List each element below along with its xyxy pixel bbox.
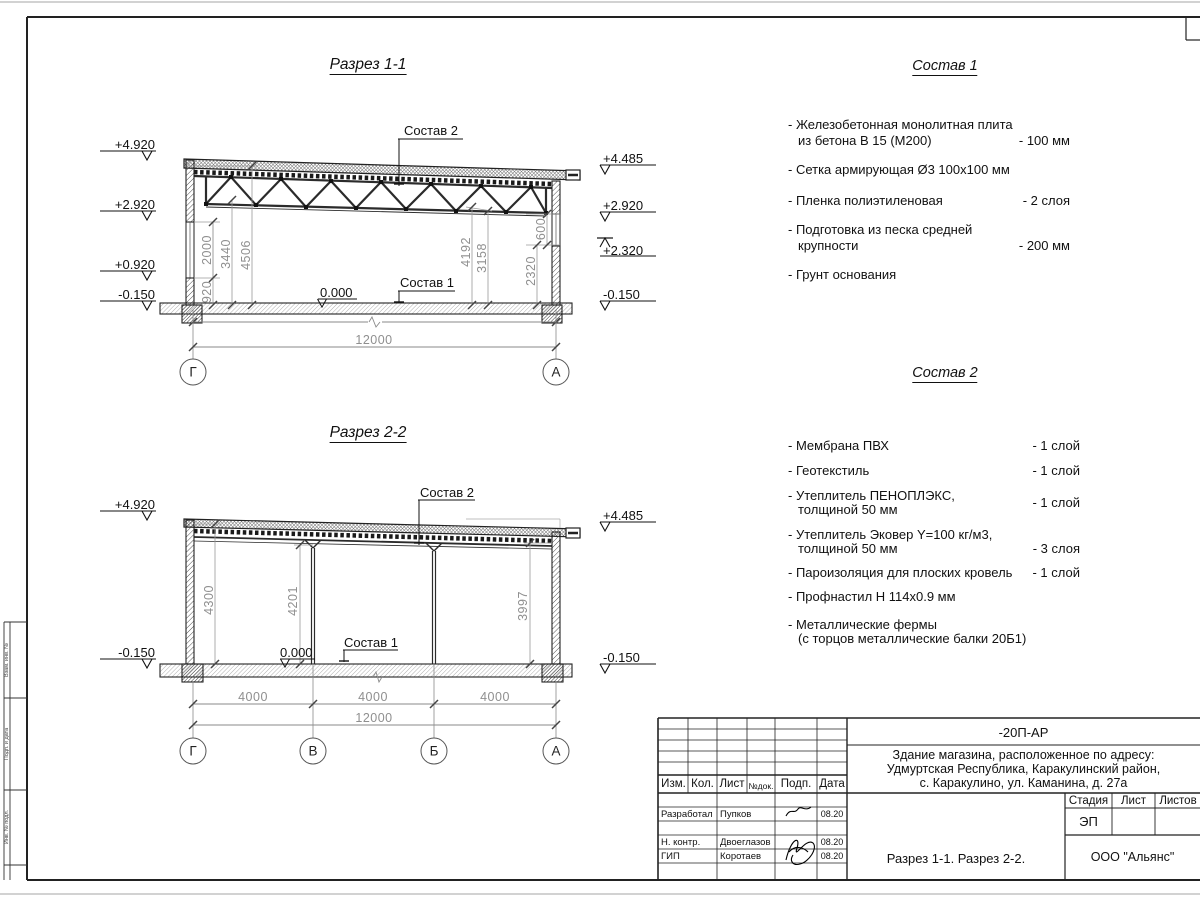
- stamp-vzam-inv: Взам. инв. №: [4, 643, 10, 677]
- tb-row2-role: Н. контр.: [661, 837, 700, 848]
- tb-row2-name: Двоеглазов: [720, 837, 771, 848]
- list1-item-5: - Грунт основания: [788, 267, 896, 282]
- section2-dim-span-1: 4000: [238, 690, 268, 704]
- section2-axis-g: Г: [189, 744, 196, 759]
- list2-value-2: - 1 слой: [1008, 463, 1080, 478]
- section1-elev-right-2: +2.920: [603, 198, 660, 213]
- list2-value-3: - 1 слой: [1008, 495, 1080, 510]
- section1-elev-right-3: +2.320: [603, 243, 660, 258]
- section2-axis-v: В: [308, 744, 317, 759]
- section1-axis-g: Г: [189, 365, 196, 380]
- tb-row2-date: 08.20: [817, 837, 847, 847]
- section1-title-text: Разрез 1-1: [330, 56, 407, 75]
- section2-elev-left-1: +4.920: [98, 497, 155, 512]
- section1-zero-mark: 0.000: [320, 285, 353, 300]
- list1-item-3: - Пленка полиэтиленовая: [788, 193, 943, 208]
- tb-doc-code: -20П-АР: [847, 725, 1200, 740]
- section2-dim-3997: 3997: [516, 591, 530, 621]
- section1-title: Разрез 1-1: [330, 56, 407, 74]
- tb-project-line1: Здание магазина, расположенное по адресу…: [847, 748, 1200, 762]
- stamp-inv-podl: Инв. № подл.: [4, 810, 10, 844]
- tb-row3-name: Коротаев: [720, 851, 761, 862]
- list2-item-1: - Мембрана ПВХ: [788, 438, 889, 453]
- tb-drawing-name: Разрез 1-1. Разрез 2-2.: [847, 851, 1065, 866]
- tb-stage-label: Стадия: [1065, 795, 1112, 807]
- section2-elev-right-2: -0.150: [603, 650, 660, 665]
- list2-item-4b: толщиной 50 мм: [798, 541, 898, 556]
- tb-col-podp: Подп.: [775, 778, 817, 790]
- list2-item-3a: - Утеплитель ПЕНОПЛЭКС,: [788, 488, 955, 503]
- section1-axis-a: А: [551, 365, 560, 380]
- section1-dim-4192: 4192: [459, 237, 473, 267]
- tb-col-data: Дата: [817, 778, 847, 790]
- list2-item-2: - Геотекстиль: [788, 463, 869, 478]
- section2-elev-right-1: +4.485: [603, 508, 660, 523]
- tb-row1-date: 08.20: [817, 809, 847, 819]
- list1-item-1b: из бетона В 15 (М200): [798, 133, 932, 148]
- section1-dim-total: 12000: [355, 333, 392, 347]
- list1-value-3: - 2 слоя: [998, 193, 1070, 208]
- list1-value-4: - 200 мм: [998, 238, 1070, 253]
- section2-sostav2-label: Состав 2: [420, 485, 474, 500]
- list2-heading: Состав 2: [912, 365, 977, 383]
- tb-company: ООО "Альянс": [1065, 850, 1200, 864]
- list2-item-7a: - Металлические фермы: [788, 617, 937, 632]
- section1-sostav2-label: Состав 2: [404, 123, 458, 138]
- section1-linework: [100, 139, 656, 385]
- section1-elev-left-3: +0.920: [98, 257, 155, 272]
- signature-strokes: [786, 807, 814, 864]
- section2-axis-b: Б: [430, 744, 439, 759]
- list2-heading-wrap: Состав 2: [912, 365, 977, 381]
- tb-col-list: Лист: [717, 778, 747, 790]
- section1-elev-left-1: +4.920: [98, 137, 155, 152]
- section2-dim-span-2: 4000: [358, 690, 388, 704]
- section2-dim-4201: 4201: [286, 586, 300, 616]
- tb-project-line2: Удмуртская Республика, Каракулинский рай…: [847, 762, 1200, 776]
- section1-dim-3158: 3158: [475, 243, 489, 273]
- section1-dim-920: 920: [200, 281, 214, 303]
- tb-sheets-label: Листов: [1155, 795, 1200, 807]
- list2-item-4a: - Утеплитель Эковер Y=100 кг/м3,: [788, 527, 992, 542]
- tb-project-line3: с. Каракулино, ул. Каманина, д. 27а: [847, 776, 1200, 790]
- section2-title-text: Разрез 2-2: [330, 424, 407, 443]
- list2-item-7b: (с торцов металлические балки 20Б1): [798, 631, 1026, 646]
- section2-axis-a: А: [551, 744, 560, 759]
- list1-heading: Состав 1: [912, 58, 977, 76]
- list1-value-1: - 100 мм: [998, 133, 1070, 148]
- list2-item-3b: толщиной 50 мм: [798, 502, 898, 517]
- list2-item-6: - Профнастил Н 114х0.9 мм: [788, 589, 956, 604]
- section1-dim-2320: 2320: [524, 256, 538, 286]
- section2-sostav1-label: Состав 1: [344, 635, 398, 650]
- tb-row1-role: Разработал: [661, 809, 713, 820]
- section2-elev-left-2: -0.150: [98, 645, 155, 660]
- list1-item-4b: крупности: [798, 238, 858, 253]
- section1-elev-left-4: -0.150: [98, 287, 155, 302]
- list1-item-1a: - Железобетонная монолитная плита: [788, 117, 1013, 132]
- section2-dim-4300: 4300: [202, 585, 216, 615]
- section2-dim-total: 12000: [355, 711, 392, 725]
- drawing-sheet: Разрез 1-1 Состав 2 Состав 1 0.000 +4.92…: [0, 0, 1200, 900]
- section2-title: Разрез 2-2: [330, 424, 407, 442]
- tb-row3-date: 08.20: [817, 851, 847, 861]
- section1-dim-2000: 2000: [200, 235, 214, 265]
- section1-elev-right-1: +4.485: [603, 151, 660, 166]
- section1-dim-3440: 3440: [219, 239, 233, 269]
- tb-row1-name: Пупков: [720, 809, 751, 820]
- section1-sostav1-label: Состав 1: [400, 275, 454, 290]
- section1-dim-600: 600: [534, 218, 548, 240]
- section1-elev-right-4: -0.150: [603, 287, 660, 302]
- list1-item-4a: - Подготовка из песка средней: [788, 222, 972, 237]
- section1-dim-4506: 4506: [239, 240, 253, 270]
- list2-value-1: - 1 слой: [1008, 438, 1080, 453]
- list2-value-5: - 1 слой: [1008, 565, 1080, 580]
- list1-heading-wrap: Состав 1: [912, 58, 977, 74]
- tb-sheet-label: Лист: [1112, 795, 1155, 807]
- tb-stage-value: ЭП: [1065, 814, 1112, 829]
- tb-col-kol: Кол.: [688, 778, 717, 790]
- stamp-podp-data: Подп. и дата: [4, 728, 10, 760]
- tb-col-izm: Изм.: [659, 778, 688, 790]
- list2-item-5: - Пароизоляция для плоских кровель: [788, 565, 1012, 580]
- section2-dim-span-3: 4000: [480, 690, 510, 704]
- list1-item-2: - Сетка армирующая Ø3 100х100 мм: [788, 162, 1010, 177]
- section1-elev-left-2: +2.920: [98, 197, 155, 212]
- tb-col-ndok: №док.: [747, 781, 775, 791]
- tb-row3-role: ГИП: [661, 851, 680, 862]
- list2-value-4: - 3 слоя: [1008, 541, 1080, 556]
- section2-zero-mark: 0.000: [280, 645, 313, 660]
